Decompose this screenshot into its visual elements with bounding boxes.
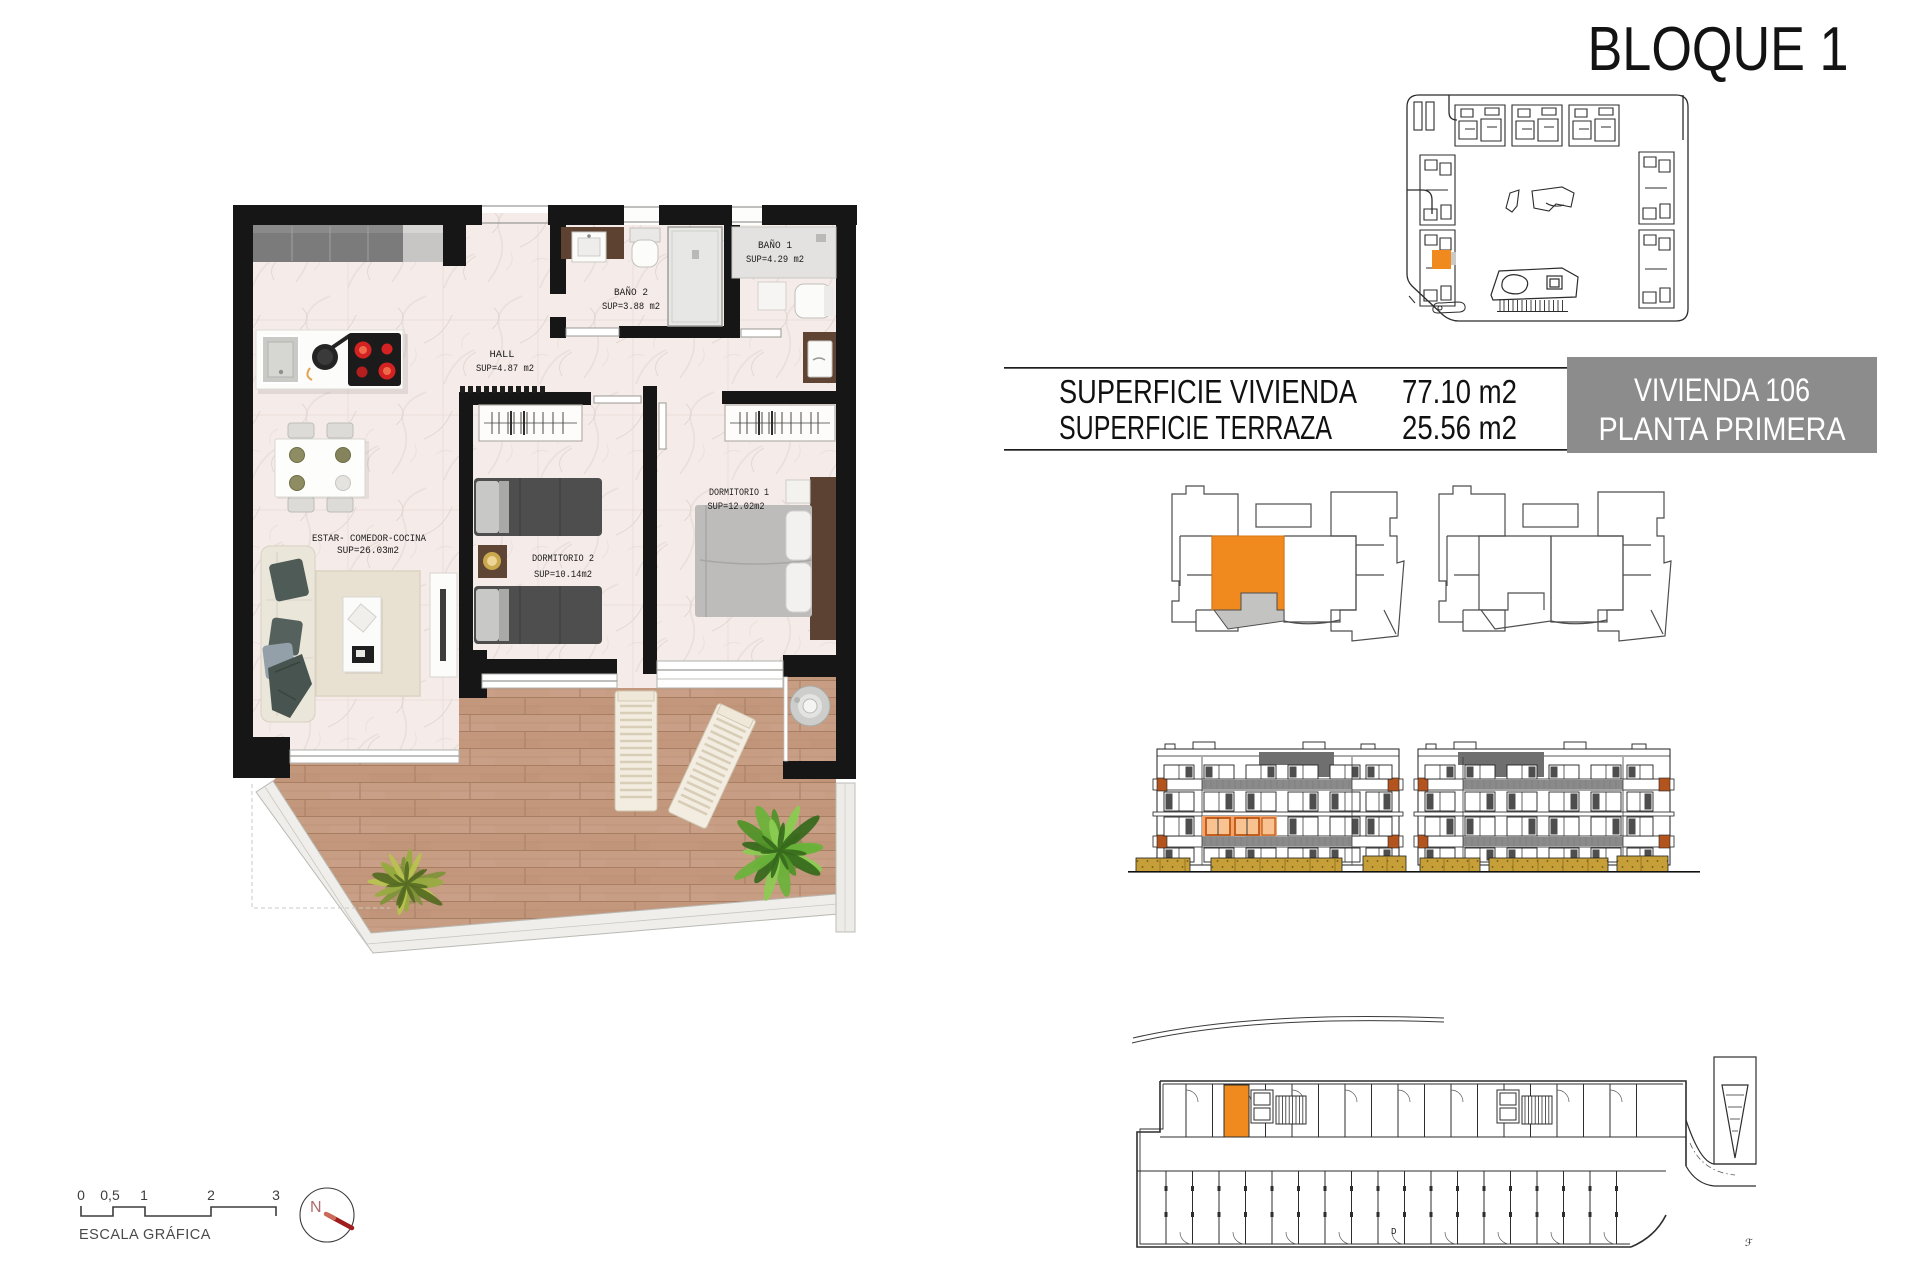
svg-text:3: 3	[272, 1187, 280, 1203]
svg-text:VIVIENDA 106: VIVIENDA 106	[1634, 372, 1810, 408]
svg-text:SUP=4.29 m2: SUP=4.29 m2	[746, 255, 804, 266]
svg-text:D: D	[1391, 1227, 1396, 1237]
svg-text:PLANTA PRIMERA: PLANTA PRIMERA	[1599, 411, 1847, 447]
svg-text:25.56 m2: 25.56 m2	[1402, 409, 1517, 446]
svg-text:77.10 m2: 77.10 m2	[1402, 373, 1517, 410]
svg-text:N: N	[310, 1199, 322, 1216]
svg-text:DORMITORIO 2: DORMITORIO 2	[532, 554, 594, 565]
svg-text:ℱ: ℱ	[1745, 1238, 1753, 1250]
svg-text:0: 0	[77, 1187, 85, 1203]
svg-text:BAÑO 2: BAÑO 2	[614, 286, 648, 299]
svg-text:SUP=12.02m2: SUP=12.02m2	[708, 502, 765, 513]
svg-text:0,5: 0,5	[100, 1187, 120, 1203]
svg-text:ESCALA GRÁFICA: ESCALA GRÁFICA	[79, 1226, 211, 1243]
svg-text:1: 1	[140, 1187, 148, 1203]
svg-text:SUPERFICIE VIVIENDA: SUPERFICIE VIVIENDA	[1059, 373, 1357, 410]
svg-text:HALL: HALL	[490, 350, 515, 361]
svg-text:BAÑO 1: BAÑO 1	[758, 239, 792, 252]
svg-text:SUP=10.14m2: SUP=10.14m2	[534, 570, 592, 581]
svg-text:ESTAR- COMEDOR-COCINA: ESTAR- COMEDOR-COCINA	[312, 534, 426, 545]
svg-text:SUPERFICIE TERRAZA: SUPERFICIE TERRAZA	[1059, 409, 1332, 446]
svg-text:DORMITORIO 1: DORMITORIO 1	[709, 488, 769, 499]
svg-text:SUP=4.87 m2: SUP=4.87 m2	[476, 364, 534, 375]
svg-text:2: 2	[207, 1187, 215, 1203]
svg-text:SUP=3.88 m2: SUP=3.88 m2	[602, 302, 660, 313]
svg-text:BLOQUE 1: BLOQUE 1	[1588, 15, 1849, 84]
svg-text:SUP=26.03m2: SUP=26.03m2	[337, 546, 399, 557]
